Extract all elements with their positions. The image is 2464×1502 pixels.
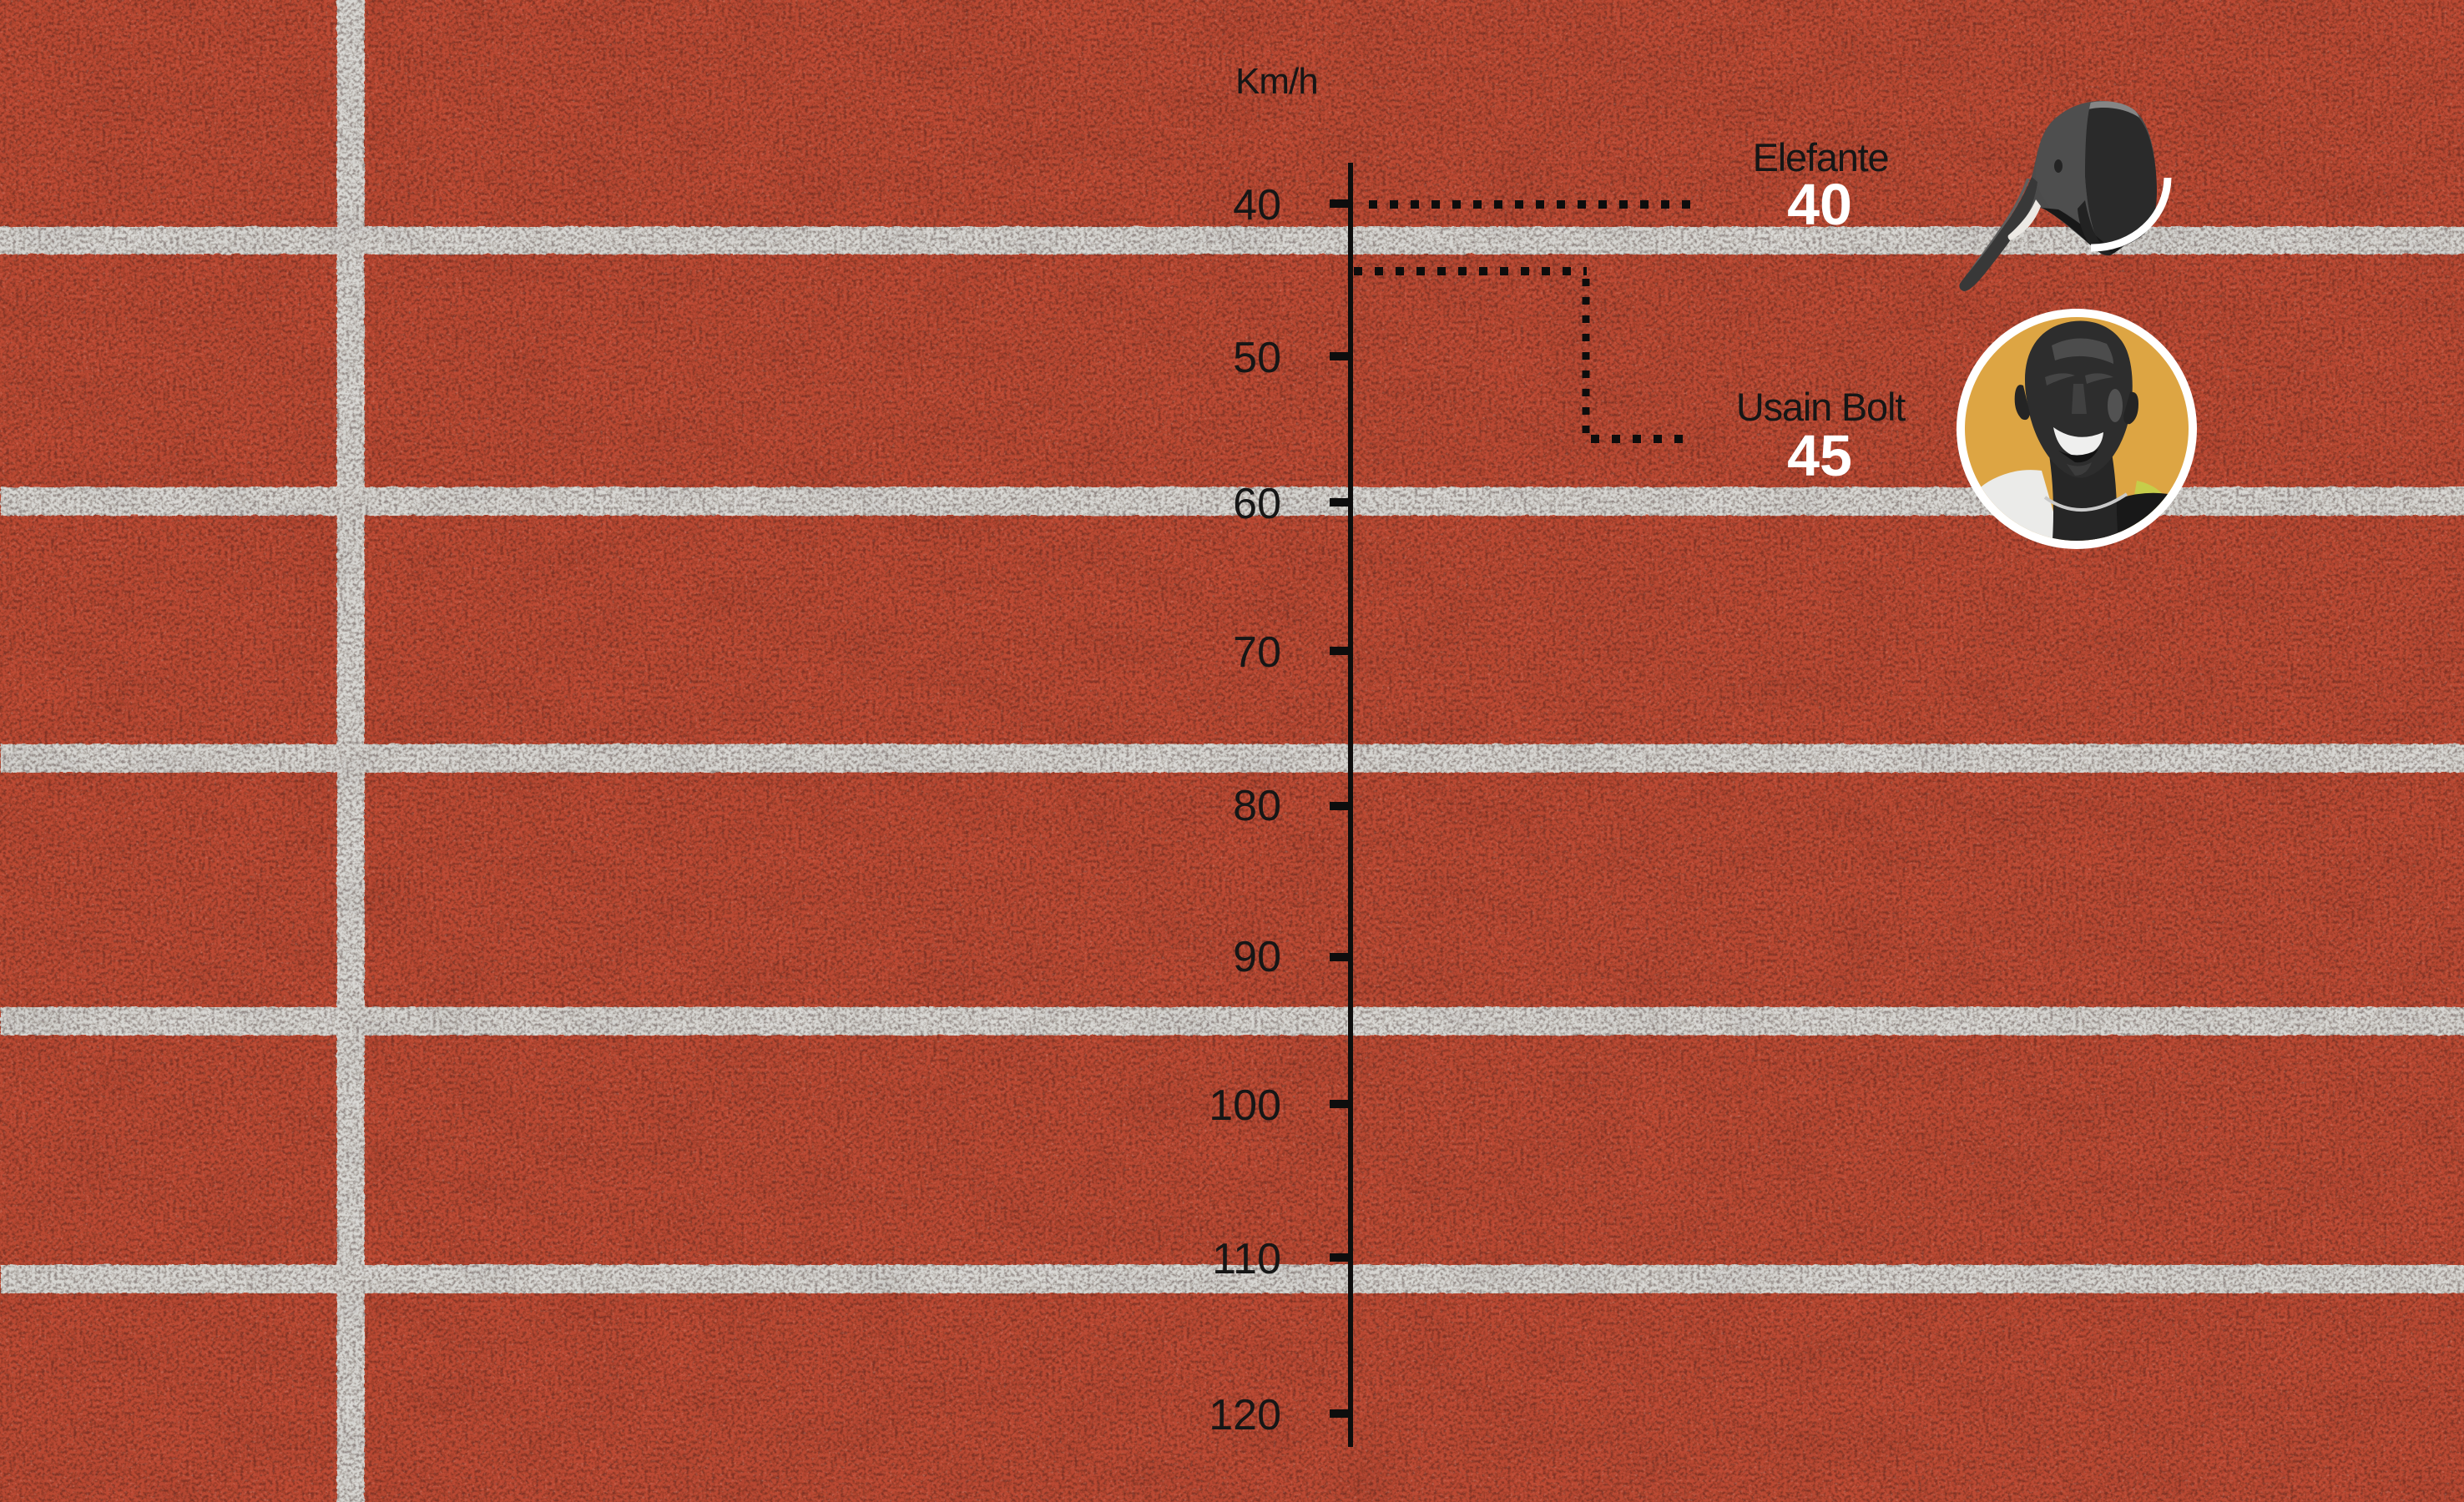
svg-text:120: 120	[1209, 1391, 1281, 1439]
svg-text:70: 70	[1233, 628, 1281, 677]
svg-text:110: 110	[1212, 1235, 1281, 1283]
svg-text:90: 90	[1233, 933, 1281, 981]
svg-text:50: 50	[1233, 334, 1281, 382]
svg-text:Km/h: Km/h	[1235, 61, 1318, 102]
svg-text:100: 100	[1209, 1081, 1281, 1130]
svg-text:60: 60	[1233, 480, 1281, 528]
svg-text:45: 45	[1787, 423, 1852, 488]
svg-text:40: 40	[1787, 172, 1852, 237]
svg-text:40: 40	[1233, 181, 1281, 229]
svg-text:80: 80	[1233, 782, 1281, 830]
